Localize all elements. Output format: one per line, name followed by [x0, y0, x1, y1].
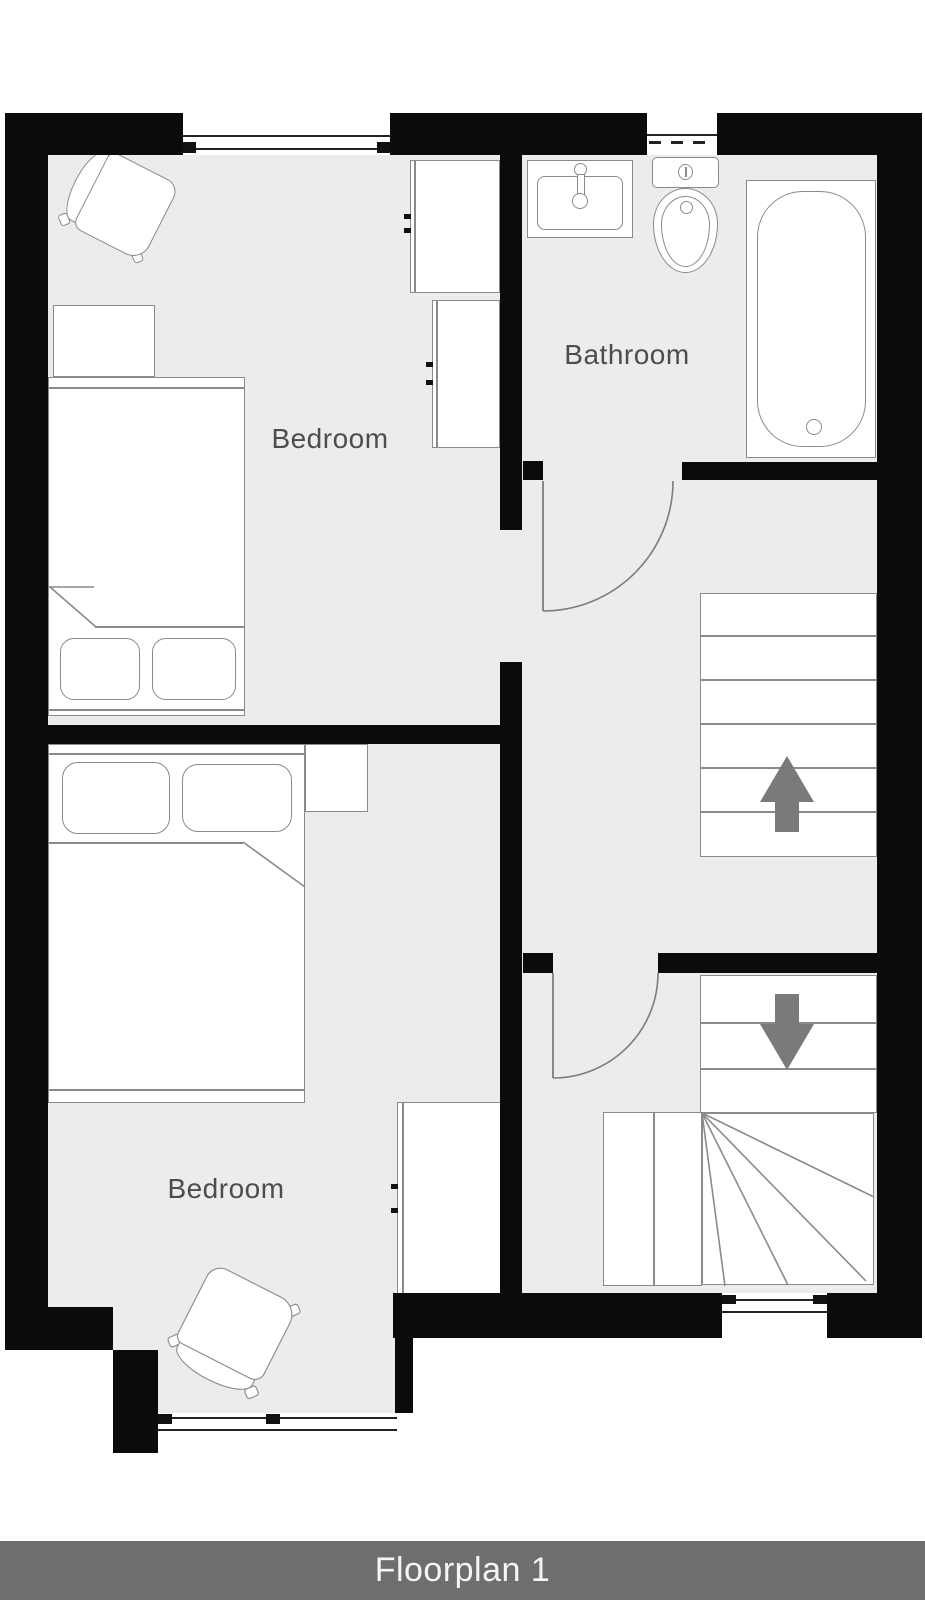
- stair-step-line: [700, 679, 877, 681]
- nightstand-bottom-bedroom: [305, 744, 368, 812]
- pillow: [60, 638, 140, 700]
- wardrobe-door-line: [414, 160, 416, 293]
- window-line: [183, 148, 390, 150]
- up-arrow-shape: [760, 756, 814, 832]
- wall-bathroom-south: [682, 462, 877, 480]
- wardrobe-handle-tick: [404, 228, 411, 233]
- bed-blanket-edge: [48, 842, 243, 844]
- bathtub-inner: [757, 191, 866, 447]
- room-label-bedroom-top: Bedroom: [271, 423, 388, 455]
- wardrobe-top-right-2: [432, 300, 500, 448]
- stair-step-line: [700, 723, 877, 725]
- stair-step-line: [700, 635, 877, 637]
- wall-bedroom-divider: [5, 725, 502, 744]
- window-jamb: [377, 142, 390, 153]
- wardrobe-bottom-bedroom: [397, 1102, 502, 1295]
- wardrobe-handle-tick: [426, 362, 433, 367]
- window-jamb: [813, 1295, 827, 1304]
- wall-bathroom-west: [500, 155, 522, 530]
- down-arrow-shape: [760, 994, 814, 1070]
- window-jamb: [158, 1414, 172, 1424]
- window-line: [722, 1311, 827, 1313]
- stairs-down-arrow-icon: [760, 994, 814, 1070]
- bed-blanket-edge: [95, 626, 245, 628]
- staircase-down-winder: [702, 1113, 874, 1285]
- wardrobe-door-line: [436, 300, 438, 448]
- room-label-bedroom-bottom: Bedroom: [167, 1173, 284, 1205]
- pillow: [62, 762, 170, 834]
- wardrobe-handle-tick: [391, 1184, 398, 1189]
- pillow: [182, 764, 292, 832]
- footer-caption-bar: Floorplan 1: [0, 1541, 925, 1600]
- bathtub-drain: [806, 419, 822, 435]
- wardrobe-handle-tick: [426, 380, 433, 385]
- wardrobe-top-right-1: [410, 160, 500, 293]
- wall-hall-west: [500, 662, 522, 1295]
- window-jamb: [183, 142, 196, 153]
- sink-faucet-base: [572, 193, 588, 209]
- wall-bathroom-door-stub: [523, 461, 543, 480]
- wall-bay-post: [113, 1350, 158, 1453]
- footer-caption-text: Floorplan 1: [375, 1551, 551, 1590]
- bed-footboard-line: [48, 387, 245, 389]
- bed-headboard-line: [48, 753, 305, 755]
- wardrobe-handle-tick: [391, 1208, 398, 1213]
- nightstand-top-bedroom: [53, 305, 155, 377]
- stair-tread-divider: [653, 1112, 655, 1286]
- window-line: [722, 1299, 827, 1301]
- stairs-up-arrow-icon: [760, 756, 814, 832]
- staircase-down-side-treads: [603, 1112, 702, 1286]
- window-dashed-line: [649, 141, 715, 144]
- wall-left-foot: [5, 1307, 113, 1350]
- floor-bay-strip: [48, 1293, 113, 1307]
- wardrobe-door-line: [402, 1102, 404, 1295]
- wall-top-middle: [390, 113, 647, 155]
- wall-bay-connector: [395, 1337, 413, 1413]
- room-label-bathroom: Bathroom: [564, 339, 689, 371]
- wall-stairwell-door-stub: [523, 953, 553, 973]
- window-line: [647, 134, 717, 136]
- window-jamb: [722, 1295, 736, 1304]
- floorplan-canvas: Bedroom Bathroom Bedroom Floorplan 1: [0, 0, 925, 1600]
- window-line: [158, 1429, 397, 1431]
- wall-left: [5, 113, 48, 1307]
- bed-headboard-line: [48, 709, 245, 711]
- wall-bottom-left: [393, 1293, 722, 1338]
- toilet-flush-slit: [685, 167, 687, 177]
- wall-stairwell: [658, 953, 877, 973]
- window-line: [183, 135, 390, 137]
- bed-footboard-line: [48, 1089, 305, 1091]
- window-mullion: [266, 1414, 280, 1424]
- toilet-bowl-dot: [680, 201, 693, 214]
- wall-right: [877, 113, 922, 1338]
- pillow: [152, 638, 236, 700]
- wardrobe-handle-tick: [404, 214, 411, 219]
